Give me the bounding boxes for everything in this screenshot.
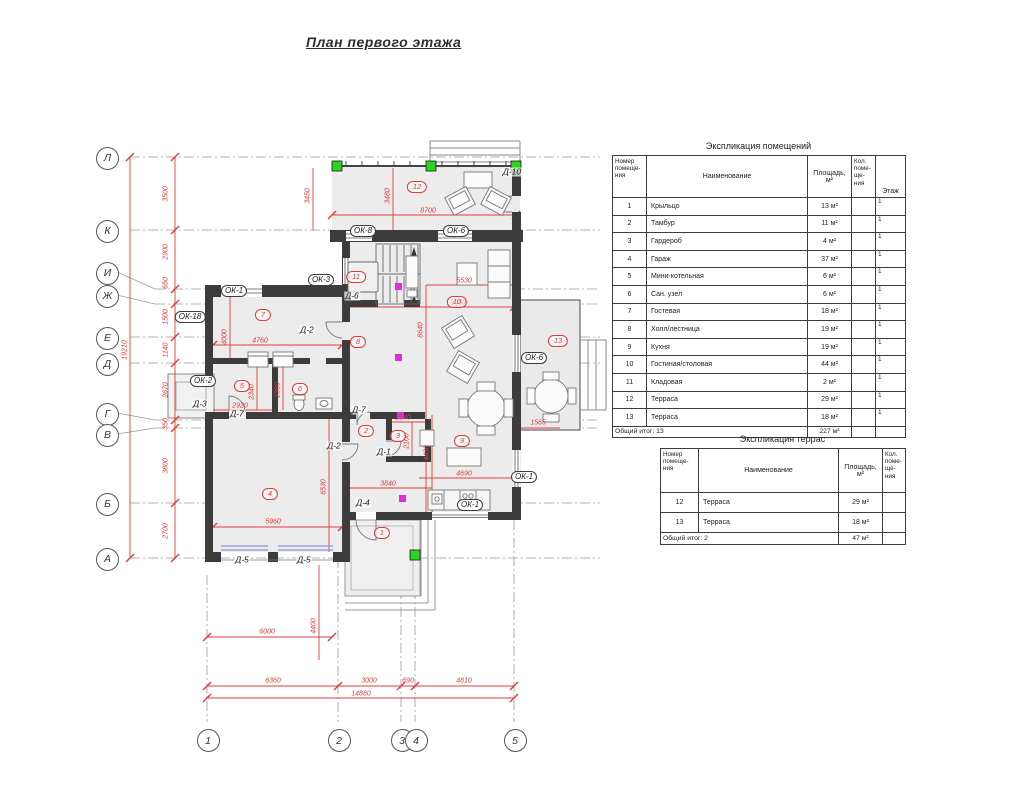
room-number-badge: 13 <box>548 335 568 347</box>
table-row: 3Гардероб4 м²1 <box>613 233 906 251</box>
cell-room-floor: 1 <box>876 338 906 356</box>
cell-room-number: 13 <box>661 513 699 533</box>
cell-room-count <box>852 391 876 409</box>
cell-room-area: 2 м² <box>808 373 852 391</box>
cell-room-floor: 1 <box>876 356 906 374</box>
room-number-badge: 2 <box>358 425 374 437</box>
cell-room-count <box>852 215 876 233</box>
cell-room-area: 4 м² <box>808 233 852 251</box>
cell-room-area: 44 м² <box>808 356 852 374</box>
axis-label-left: Г <box>96 403 119 426</box>
cell-room-number: 13 <box>613 409 647 427</box>
cell-room-count <box>883 493 906 513</box>
cell-room-area: 18 м² <box>808 303 852 321</box>
cell-room-number: 1 <box>613 198 647 216</box>
door-tag: Д-4 <box>355 499 371 508</box>
room-number-badge: 11 <box>346 271 366 283</box>
dimension-label: 690 <box>402 678 414 685</box>
col-header-area: Площадь, м² <box>839 449 883 493</box>
cell-room-name: Гардероб <box>647 233 808 251</box>
room-number-badge: 7 <box>255 309 271 321</box>
cell-room-number: 2 <box>613 215 647 233</box>
cell-room-count <box>852 250 876 268</box>
dimension-label: 8640 <box>418 322 425 338</box>
cell-room-number: 6 <box>613 285 647 303</box>
dimension-label: 3480 <box>385 188 392 204</box>
cell-room-number: 12 <box>613 391 647 409</box>
cell-room-count <box>852 233 876 251</box>
room-number-badge: 10 <box>447 296 467 308</box>
window-tag: ОК-6 <box>443 225 469 237</box>
cell-room-count <box>852 373 876 391</box>
cell-room-area: 18 м² <box>839 513 883 533</box>
dimension-label: 5530 <box>456 278 472 285</box>
garage-doors <box>221 546 333 550</box>
cell-room-name: Кладовая <box>647 373 808 391</box>
steps-top <box>430 141 520 166</box>
table-row: 5Мини-котельная6 м²1 <box>613 268 906 286</box>
axis-label-left: Л <box>96 147 119 170</box>
axis-grid-lines <box>130 157 600 722</box>
cell-room-count <box>852 338 876 356</box>
cell-room-area: 13 м² <box>808 198 852 216</box>
cell-room-name: Сан. узел <box>647 285 808 303</box>
table-row: 12Терраса29 м² <box>661 493 906 513</box>
room-number-badge: 3 <box>390 430 406 442</box>
cell-room-floor: 1 <box>876 321 906 339</box>
cell-room-number: 11 <box>613 373 647 391</box>
room-number-badge: 9 <box>454 435 470 447</box>
col-header-area: Площадь, м² <box>808 156 852 198</box>
cell-room-number: 7 <box>613 303 647 321</box>
cell-room-floor: 1 <box>876 303 906 321</box>
room-number-badge: 5 <box>234 380 250 392</box>
cell-room-count <box>852 268 876 286</box>
col-header-number: Номер помеще- ния <box>661 449 699 493</box>
dimension-label: 1140 <box>163 342 170 357</box>
dimension-label: 3450 <box>305 188 312 204</box>
cell-room-count <box>883 513 906 533</box>
axis-label-left: И <box>96 262 119 285</box>
dimension-label: 6530 <box>321 479 328 495</box>
terrace-table-title: Экспликация террас <box>660 434 905 444</box>
table-row: 12Терраса29 м²1 <box>613 391 906 409</box>
room-table-title: Экспликация помещений <box>612 141 905 151</box>
furniture <box>248 172 576 510</box>
axis-label-bottom: 5 <box>504 729 527 752</box>
cell-room-name: Тамбур <box>647 215 808 233</box>
cell-room-name: Терраса <box>647 409 808 427</box>
dimension-label: 2900 <box>163 244 170 260</box>
dimension-label: 3000 <box>361 678 377 685</box>
door-tag: Д-6 <box>344 292 360 301</box>
cell-room-floor: 1 <box>876 285 906 303</box>
room-number-badge: 4 <box>262 488 278 500</box>
table-row: 2Тамбур11 м²1 <box>613 215 906 233</box>
cell-room-floor: 1 <box>876 373 906 391</box>
total-area: 47 м² <box>839 533 883 545</box>
dimension-label: 2360 <box>275 382 282 398</box>
dimension-label: 3500 <box>163 186 170 202</box>
axis-label-bottom: 4 <box>405 729 428 752</box>
window-tag: ОК-8 <box>350 225 376 237</box>
table-row: 10Гостиная/столовая44 м²1 <box>613 356 906 374</box>
cell-room-name: Крыльцо <box>647 198 808 216</box>
table-row: 13Терраса18 м² <box>661 513 906 533</box>
axis-label-left: Б <box>96 493 119 516</box>
table-row: 7Гостевая18 м²1 <box>613 303 906 321</box>
table-row: 8Холл/лестница19 м²1 <box>613 321 906 339</box>
table-row: 6Сан. узел6 м²1 <box>613 285 906 303</box>
axis-label-left: А <box>96 548 119 571</box>
cell-room-area: 29 м² <box>808 391 852 409</box>
col-header-number: Номер помеще- ния <box>613 156 647 198</box>
col-header-count: Кол. поме- ще- ния <box>883 449 906 493</box>
window-tag: ОК-6 <box>521 352 547 364</box>
dimension-label: 4000 <box>222 329 229 345</box>
table-row: 1Крыльцо13 м²1 <box>613 198 906 216</box>
table-total-row: Общий итог: 2 47 м² <box>661 533 906 545</box>
col-header-name: Наименование <box>699 449 839 493</box>
total-label: Общий итог: 2 <box>661 533 839 545</box>
stairs <box>376 244 420 304</box>
cell-room-area: 18 м² <box>808 409 852 427</box>
axis-label-left: Ж <box>96 285 119 308</box>
table-row: 13Терраса18 м²1 <box>613 409 906 427</box>
window-tag: ОК-3 <box>308 274 334 286</box>
dimension-label: 4400 <box>311 618 318 634</box>
window-tag: ОК-18 <box>175 311 206 323</box>
cell-room-number: 3 <box>613 233 647 251</box>
axis-label-left: Д <box>96 353 119 376</box>
cell-room-floor: 1 <box>876 391 906 409</box>
dimension-label: 1500 <box>163 309 170 325</box>
dimension-label: 6000 <box>259 629 275 636</box>
door-tag: Д-2 <box>299 326 315 335</box>
table-row: 9Кухня19 м²1 <box>613 338 906 356</box>
steps-terrace13 <box>580 340 606 410</box>
table-row: 11Кладовая2 м²1 <box>613 373 906 391</box>
dimension-label: 3840 <box>380 481 396 488</box>
dimension-label: 4810 <box>456 678 472 685</box>
cell-room-number: 9 <box>613 338 647 356</box>
dimension-label: 3800 <box>163 458 170 474</box>
window-tag: ОК-1 <box>511 471 537 483</box>
dimension-label: 350 <box>163 418 170 430</box>
cell-room-count <box>852 303 876 321</box>
terrace12-edge-ticks <box>346 161 506 166</box>
dimension-label: 14860 <box>351 691 370 698</box>
cell-room-count <box>852 409 876 427</box>
cell-room-area: 11 м² <box>808 215 852 233</box>
cell-room-number: 4 <box>613 250 647 268</box>
door-tag: Д-10 <box>502 168 522 177</box>
dimension-label: 6360 <box>265 678 281 685</box>
dimension-label: 4760 <box>252 338 268 345</box>
dimension-lines <box>130 157 560 698</box>
cell-room-number: 8 <box>613 321 647 339</box>
room-number-badge: 12 <box>407 181 427 193</box>
door-tag: Д-5 <box>296 556 312 565</box>
cell-room-count <box>852 321 876 339</box>
door-tag: Д-5 <box>234 556 250 565</box>
cell-room-area: 37 м² <box>808 250 852 268</box>
col-header-name: Наименование <box>647 156 808 198</box>
window-tag: ОК-2 <box>190 375 216 387</box>
cell-room-number: 12 <box>661 493 699 513</box>
cell-room-count <box>852 356 876 374</box>
cell-room-name: Холл/лестница <box>647 321 808 339</box>
windows <box>221 231 520 519</box>
door-tag: Д-1 <box>376 448 392 457</box>
col-header-count: Кол. поме- ще- ния <box>852 156 876 198</box>
cell-room-count <box>852 285 876 303</box>
door-tag: Д-7 <box>229 410 245 419</box>
room-number-badge: 6 <box>292 383 308 395</box>
col-header-floor: Этаж <box>876 156 906 198</box>
page-title: План первого этажа <box>306 34 461 50</box>
cell-room-area: 19 м² <box>808 321 852 339</box>
room-number-badge: 8 <box>350 336 366 348</box>
axis-label-left: В <box>96 424 119 447</box>
dimension-label: 650 <box>163 277 170 289</box>
vent-markers <box>395 283 406 502</box>
axis-label-left: Е <box>96 327 119 350</box>
cell-room-name: Гостиная/столовая <box>647 356 808 374</box>
steps-porch <box>345 520 435 610</box>
axis-label-left: К <box>96 220 119 243</box>
door-tag: Д-3 <box>192 400 208 409</box>
cell-room-name: Терраса <box>699 493 839 513</box>
window-tag: ОК-1 <box>221 285 247 297</box>
door-tag: Д-7 <box>351 406 367 415</box>
table-row: 4Гараж37 м²1 <box>613 250 906 268</box>
dimension-label: 19210 <box>122 340 129 359</box>
dimension-label: 1565 <box>530 420 546 427</box>
cell-room-name: Мини-котельная <box>647 268 808 286</box>
cell-room-name: Гараж <box>647 250 808 268</box>
axis-label-bottom: 2 <box>328 729 351 752</box>
cell-room-area: 29 м² <box>839 493 883 513</box>
window-tag: ОК-1 <box>457 499 483 511</box>
dimension-label: 2670 <box>163 382 170 398</box>
drawing-sheet: План первого этажа <box>0 0 1024 791</box>
cell-room-floor: 1 <box>876 250 906 268</box>
cell-room-floor: 1 <box>876 215 906 233</box>
cell-room-count <box>852 198 876 216</box>
dimension-label: 5960 <box>265 519 281 526</box>
cell-room-floor: 1 <box>876 198 906 216</box>
room-number-badge: 1 <box>374 527 390 539</box>
cell-room-floor: 1 <box>876 268 906 286</box>
cell-room-number: 10 <box>613 356 647 374</box>
cell-room-area: 19 м² <box>808 338 852 356</box>
room-explication-table: Номер помеще- ния Наименование Площадь, … <box>612 155 905 438</box>
door-tag: Д-2 <box>326 442 342 451</box>
cell-room-number: 5 <box>613 268 647 286</box>
dimension-label: 1540 <box>395 415 411 422</box>
terrace-explication-table: Номер помеще- ния Наименование Площадь, … <box>660 448 905 545</box>
cell-room-floor: 1 <box>876 409 906 427</box>
dimension-label: 8700 <box>420 208 436 215</box>
cell-room-area: 6 м² <box>808 285 852 303</box>
cell-room-area: 6 м² <box>808 268 852 286</box>
dimension-label: 2700 <box>163 523 170 539</box>
dimension-label: 4430 <box>424 445 431 461</box>
cell-room-floor: 1 <box>876 233 906 251</box>
dimension-label: 4690 <box>456 471 472 478</box>
cell-room-name: Кухня <box>647 338 808 356</box>
cell-room-name: Терраса <box>647 391 808 409</box>
axis-label-bottom: 1 <box>197 729 220 752</box>
cell-room-name: Гостевая <box>647 303 808 321</box>
total-count <box>883 533 906 545</box>
cell-room-name: Терраса <box>699 513 839 533</box>
